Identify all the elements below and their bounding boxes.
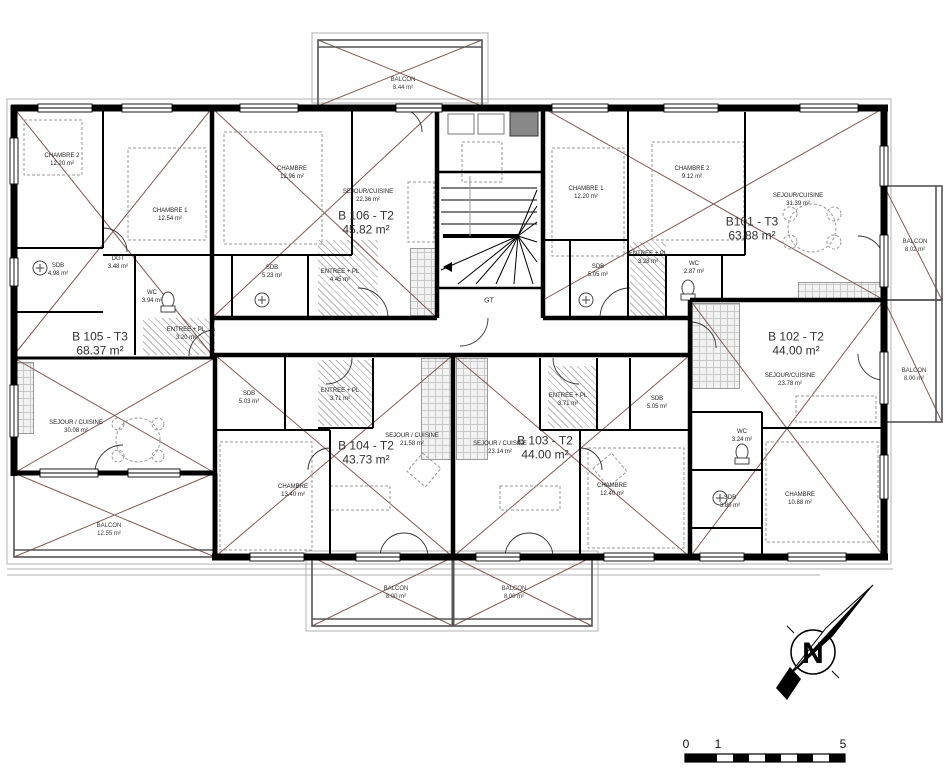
balcony-label-top: BALCON 8.44 m²	[391, 76, 416, 92]
room-label-b101-chambre2: CHAMBRE 2 9.12 m²	[674, 165, 709, 181]
technical-room-label: GT	[484, 298, 494, 305]
bathroom-fixtures	[33, 261, 749, 505]
room-label-b105-wc: WC 3.94 m²	[142, 289, 162, 305]
room-label-b103-sejour: SEJOUR / CUISINE 23.14 m²	[473, 440, 527, 456]
apartment-area: 43.73 m²	[338, 453, 394, 467]
apartment-area: 63.88 m²	[726, 229, 778, 243]
room-label-b105-dgt: DGT 3.48 m²	[108, 255, 128, 271]
room-label-b103-chambre: CHAMBRE 12.40 m²	[597, 482, 627, 498]
balcony-label-bottom-middle-left: BALCON 8.00 m²	[384, 585, 409, 601]
room-label-b101-entree: ENTREE + PL 3.28 m²	[629, 250, 668, 266]
apartment-area: 45.82 m²	[338, 223, 394, 237]
room-label-b104-sdb: SDB 5.03 m²	[239, 390, 259, 406]
room-label-b102-wc: WC 3.24 m²	[732, 428, 752, 444]
apartment-label-b106: B 106 - T2 45.82 m²	[338, 209, 394, 238]
room-label-b104-chambre: CHAMBRE 13.40 m²	[278, 483, 308, 499]
balcony-label-bottom-left: BALCON 12.55 m²	[97, 522, 122, 538]
apartment-label-b101: B101 - T3 63.88 m²	[726, 215, 778, 244]
room-label-b102-chambre: CHAMBRE 10.88 m²	[785, 491, 815, 507]
room-label-b103-sdb: SDB 5.05 m²	[647, 395, 667, 411]
room-label-b101-sejour: SEJOUR/CUISINE 31.39 m²	[773, 192, 823, 208]
scale-bar	[685, 754, 845, 762]
room-label-b104-sejour: SEJOUR / CUISINE 21.58 m²	[385, 432, 439, 448]
compass-icon: N	[776, 585, 873, 700]
room-label-b101-wc: WC 2.87 m²	[684, 260, 704, 276]
room-label-b105-entree: ENTREE + PL 3.20 m²	[167, 326, 206, 342]
room-label-b101-sdb: SDB 5.05 m²	[588, 263, 608, 279]
apartment-label-b105: B 105 - T3 68.37 m²	[72, 330, 128, 359]
room-label-b105-chambre1: CHAMBRE 1 12.54 m²	[152, 207, 187, 223]
room-label-b101-chambre1: CHAMBRE 1 12.20 m²	[568, 185, 603, 201]
room-label-b105-sdb: SDB 4.98 m²	[48, 262, 68, 278]
interior-walls	[14, 108, 884, 557]
room-label-b104-entree: ENTREE + PL 3.71 m²	[321, 387, 360, 403]
room-label-b105-chambre2: CHAMBRE 2 12.20 m²	[44, 152, 79, 168]
room-label-b106-sdb: SDB 5.23 m²	[262, 264, 282, 280]
room-label-b106-sejour: SEJOUR/CUISINE 22.36 m²	[343, 188, 393, 204]
floor-plan: N B 105 - T3 68.37 m² B 106 - T2 45.82 m…	[0, 0, 945, 770]
room-label-b102-sdb: SDB 3.80 m²	[720, 494, 740, 510]
room-label-b102-sejour: SEJOUR/CUISINE 23.78 m²	[765, 372, 815, 388]
balcony-label-right-lower: BALCON 8.00 m²	[902, 367, 927, 383]
apartment-label-b102: B 102 - T2 44.00 m²	[768, 330, 824, 359]
overhang-outline	[7, 33, 893, 631]
compass-north-letter: N	[802, 637, 824, 670]
partitions	[14, 108, 884, 557]
room-label-b103-entree: ENTREE + PL 3.71 m²	[549, 392, 588, 408]
scale-tick-1: 1	[715, 737, 722, 751]
balcony-label-right-upper: BALCON 8.02 m²	[903, 238, 928, 254]
apartment-area: 68.37 m²	[72, 344, 128, 358]
scale-tick-5: 5	[840, 737, 847, 751]
scale-tick-0: 0	[683, 737, 690, 751]
balcony-label-bottom-middle-right: BALCON 8.00 m²	[502, 585, 527, 601]
apartment-area: 44.00 m²	[768, 344, 824, 358]
room-label-b105-sejour: SEJOUR / CUISINE 30.08 m²	[49, 419, 103, 435]
room-label-b106-chambre: CHAMBRE 12.96 m²	[277, 165, 307, 181]
apartment-name: B 105 - T3	[72, 330, 128, 344]
room-label-b106-entree: ENTREE + PL 4.45 m²	[321, 268, 360, 284]
apartment-name: B101 - T3	[726, 215, 778, 229]
apartment-name: B 102 - T2	[768, 330, 824, 344]
apartment-name: B 106 - T2	[338, 209, 394, 223]
staircase	[441, 112, 538, 284]
